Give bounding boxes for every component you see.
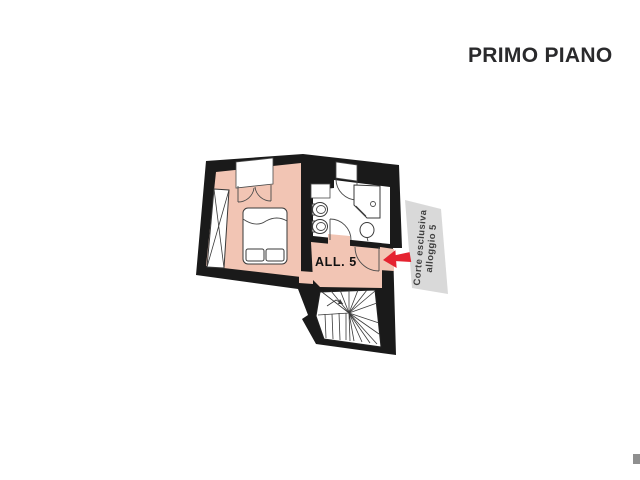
bathroom-window [336, 162, 357, 181]
floor-plan: Corte esclusiva alloggio 5 [0, 0, 640, 480]
courtyard-banner: Corte esclusiva alloggio 5 [405, 200, 448, 294]
pillow-right [266, 249, 284, 261]
bidet [312, 220, 328, 234]
bedroom-window [236, 158, 273, 188]
double-bed [243, 208, 287, 264]
bathroom-niche [311, 184, 330, 198]
toilet [312, 203, 328, 217]
bathroom-doorway [328, 234, 350, 251]
edge-artifact [633, 454, 640, 464]
staircase-floor [316, 290, 381, 347]
bedroom-doorway [299, 271, 313, 284]
pillow-left [246, 249, 264, 261]
unit-label: ALL. 5 [315, 255, 357, 269]
